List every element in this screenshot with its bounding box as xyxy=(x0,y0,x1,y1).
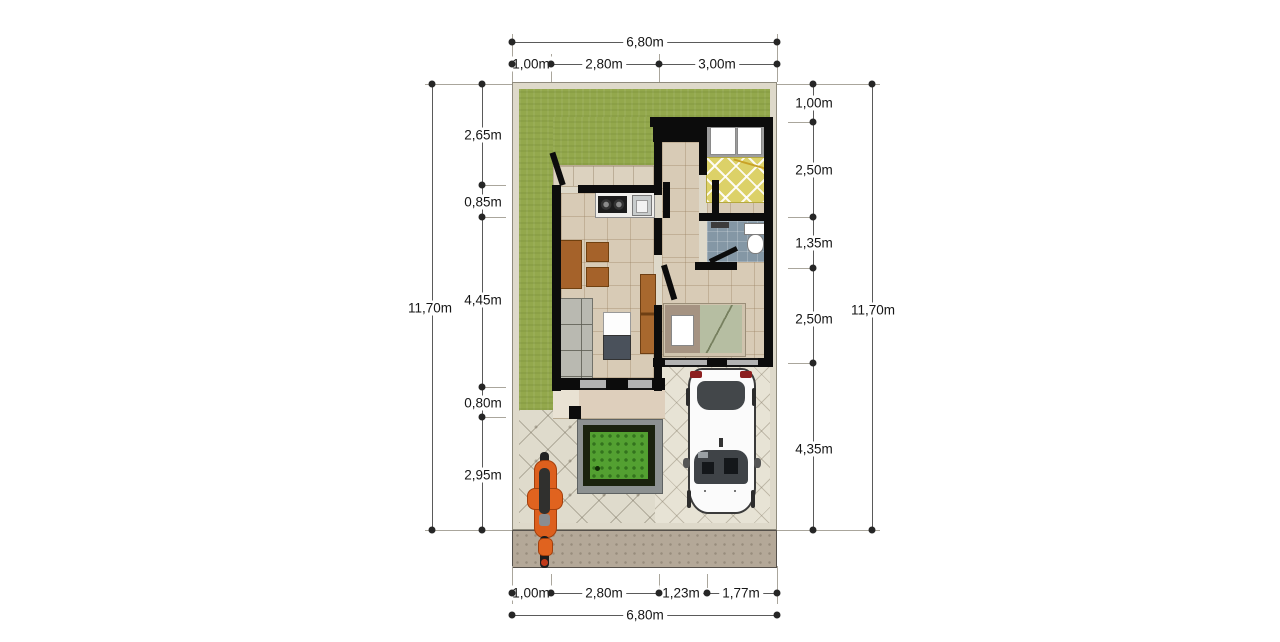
kitchen-hall-door-leaf xyxy=(663,182,670,218)
dim-tick xyxy=(482,387,506,388)
car-taillight-left xyxy=(690,371,702,378)
dim-dot xyxy=(810,265,817,272)
wall-bath-north xyxy=(699,213,773,221)
side-table-2 xyxy=(586,267,609,287)
wall-west xyxy=(552,185,561,391)
dim-dot xyxy=(656,61,663,68)
car xyxy=(686,366,758,516)
wall-living-south-a xyxy=(552,378,580,390)
dim-dot xyxy=(810,81,817,88)
dim-dot xyxy=(656,590,663,597)
car-wheel-fl xyxy=(687,490,691,508)
wall-kitchen-north-b xyxy=(578,185,662,193)
dim-dot xyxy=(479,182,486,189)
dim-label-top-seg2: 3,00m xyxy=(695,57,739,72)
garden-grass xyxy=(590,432,648,479)
bath-sink-icon xyxy=(711,222,729,228)
dim-label-right-seg0: 1,00m xyxy=(792,96,836,111)
ext-line xyxy=(777,566,778,604)
moto-windscreen xyxy=(539,514,550,526)
ext-line xyxy=(425,84,512,85)
dim-dot xyxy=(869,81,876,88)
motorcycle xyxy=(526,452,562,568)
bed2-blanket xyxy=(700,305,742,353)
ext-line xyxy=(659,54,660,82)
car-windshield xyxy=(694,450,748,484)
wall-mid-a xyxy=(654,117,662,195)
coffee-table-base xyxy=(603,335,631,360)
dim-dot xyxy=(774,39,781,46)
ext-line xyxy=(425,530,512,531)
car-wheel-rl xyxy=(686,388,690,406)
dim-label-top-seg1: 2,80m xyxy=(582,57,626,72)
dim-tick xyxy=(482,417,506,418)
dim-label-left-seg3: 0,80m xyxy=(461,396,505,411)
floor-plan-canvas: 6,80m 1,00m 2,80m 3,00m 1,00m 2,80m 1,23… xyxy=(0,0,1280,642)
bed2-window-1 xyxy=(665,358,707,367)
dim-dot xyxy=(774,590,781,597)
side-table-1 xyxy=(586,242,609,262)
wall-bed2-south-c xyxy=(758,358,773,367)
dim-label-right-overall: 11,70m xyxy=(848,303,898,318)
wall-bed2-south-b xyxy=(707,358,727,367)
ext-line xyxy=(777,84,880,85)
car-mirror-right xyxy=(754,458,761,468)
dim-dot xyxy=(869,527,876,534)
dim-label-bottom-seg2: 1,23m xyxy=(659,586,703,601)
car-dash-detail-3 xyxy=(698,452,708,458)
dim-label-left-seg0: 2,65m xyxy=(461,128,505,143)
wall-mid-b xyxy=(654,218,662,255)
dim-line-right-segments xyxy=(813,84,814,530)
dim-dot xyxy=(548,590,555,597)
lawn-top xyxy=(519,89,770,117)
bed2-pillow xyxy=(671,315,694,346)
dim-tick xyxy=(482,217,506,218)
dim-label-bottom-overall: 6,80m xyxy=(623,608,667,623)
wall-living-south-b xyxy=(652,378,665,390)
car-rear-window xyxy=(697,381,745,410)
dim-label-right-seg4: 4,35m xyxy=(792,442,836,457)
dim-dot xyxy=(509,612,516,619)
moto-front-tip xyxy=(541,559,548,566)
dim-label-right-seg2: 1,35m xyxy=(792,236,836,251)
car-hood-dot-1 xyxy=(704,490,706,492)
sink-basin xyxy=(636,200,648,213)
dim-dot xyxy=(429,81,436,88)
dim-dot xyxy=(479,81,486,88)
coffee-table-top xyxy=(603,312,631,337)
dim-dot xyxy=(810,360,817,367)
car-wheel-fr xyxy=(751,490,755,508)
dim-dot xyxy=(509,61,516,68)
ext-line xyxy=(707,574,708,588)
dim-dot xyxy=(429,527,436,534)
car-wheel-rr xyxy=(752,388,756,406)
dim-dot xyxy=(509,590,516,597)
bed1-pillow-left xyxy=(710,127,736,155)
dim-dot xyxy=(810,119,817,126)
wall-east xyxy=(764,117,773,367)
porch-column xyxy=(569,406,581,419)
lawn-mid xyxy=(553,117,655,165)
dim-label-left-seg2: 4,45m xyxy=(461,293,505,308)
dim-label-left-overall: 11,70m xyxy=(405,301,455,316)
garden-stone xyxy=(595,466,600,471)
dim-label-right-seg3: 2,50m xyxy=(792,312,836,327)
dim-label-right-seg1: 2,50m xyxy=(792,163,836,178)
wall-bed2-south-a xyxy=(653,358,665,367)
dim-label-left-seg1: 0,85m xyxy=(461,195,505,210)
dim-tick xyxy=(482,185,506,186)
car-dash-detail-1 xyxy=(702,462,714,474)
dim-label-top-seg0: 1,00m xyxy=(509,57,553,72)
car-taillight-right xyxy=(740,371,752,378)
stove-icon xyxy=(598,196,627,213)
bed2-window-2 xyxy=(727,358,758,367)
dim-label-bottom-seg1: 2,80m xyxy=(582,586,626,601)
lawn-left-strip xyxy=(519,117,553,410)
living-window-2 xyxy=(628,378,652,390)
dim-label-bottom-seg3: 1,77m xyxy=(719,586,763,601)
bedroom1-door-leaf xyxy=(712,180,719,218)
dim-dot xyxy=(704,590,711,597)
dim-dot xyxy=(479,214,486,221)
moto-front-fender xyxy=(538,538,553,556)
dim-dot xyxy=(479,384,486,391)
dim-dot xyxy=(479,527,486,534)
side-path xyxy=(553,165,655,187)
front-door xyxy=(606,378,628,390)
dim-dot xyxy=(810,214,817,221)
dim-label-bottom-seg0: 1,00m xyxy=(509,586,553,601)
dim-dot xyxy=(509,39,516,46)
car-hood-dot-2 xyxy=(734,490,736,492)
ext-line xyxy=(777,530,880,531)
moto-seat xyxy=(539,468,550,514)
sofa xyxy=(558,298,593,379)
bed1-pillow-right xyxy=(737,127,762,155)
dim-dot xyxy=(548,61,555,68)
dim-dot xyxy=(774,61,781,68)
wall-hall-bedroom1-a xyxy=(699,117,707,175)
dim-label-left-seg4: 2,95m xyxy=(461,468,505,483)
dim-dot xyxy=(479,414,486,421)
living-window-1 xyxy=(580,378,606,390)
car-mirror-left xyxy=(683,458,690,468)
dim-dot xyxy=(810,527,817,534)
wall-bath-south xyxy=(695,262,737,270)
car-dash-detail-2 xyxy=(724,458,738,474)
toilet-bowl xyxy=(747,234,764,254)
car-antenna xyxy=(719,438,723,447)
kitchen-sink-icon xyxy=(632,195,652,216)
dim-dot xyxy=(774,612,781,619)
dim-label-top-overall: 6,80m xyxy=(623,35,667,50)
